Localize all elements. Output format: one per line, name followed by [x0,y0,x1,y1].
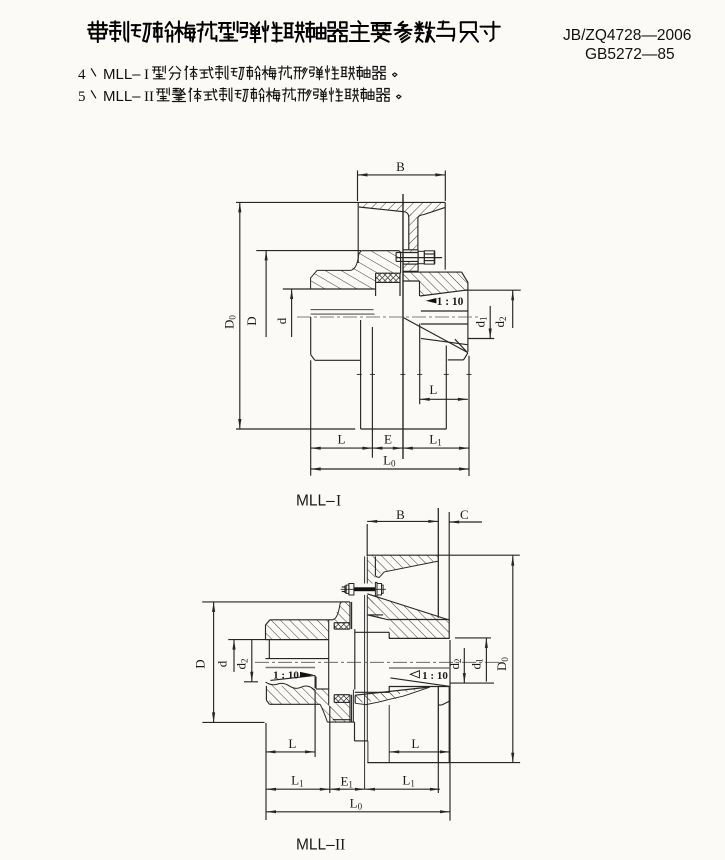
svg-text:B: B [396,159,405,174]
svg-text:GB5272—85: GB5272—85 [585,46,675,63]
svg-text:D: D [244,316,259,325]
svg-text:L: L [411,736,419,751]
svg-text:L: L [338,432,346,447]
svg-text:L: L [429,382,437,397]
svg-text:I: I [336,493,341,510]
svg-text:d: d [274,317,289,324]
svg-text:MLL–: MLL– [296,836,335,853]
svg-text:5: 5 [78,89,86,105]
svg-text:D: D [193,659,208,668]
svg-text:C: C [460,507,469,522]
svg-text:MLL–: MLL– [103,88,141,105]
svg-text:E: E [384,432,392,447]
svg-text:MLL–: MLL– [103,66,141,83]
svg-text:L: L [288,736,296,751]
svg-text:II: II [335,836,345,853]
svg-text:MLL–: MLL– [296,493,335,510]
svg-text:1 : 10: 1 : 10 [422,670,448,682]
svg-text:JB/ZQ4728—2006: JB/ZQ4728—2006 [563,27,691,44]
svg-text:II: II [144,89,154,105]
svg-text:B: B [396,507,405,522]
svg-text:I: I [144,67,149,83]
svg-text:d: d [215,660,230,667]
svg-text:1 : 10: 1 : 10 [437,296,464,308]
svg-text:1 : 10: 1 : 10 [273,670,299,682]
svg-text:4: 4 [78,67,86,83]
